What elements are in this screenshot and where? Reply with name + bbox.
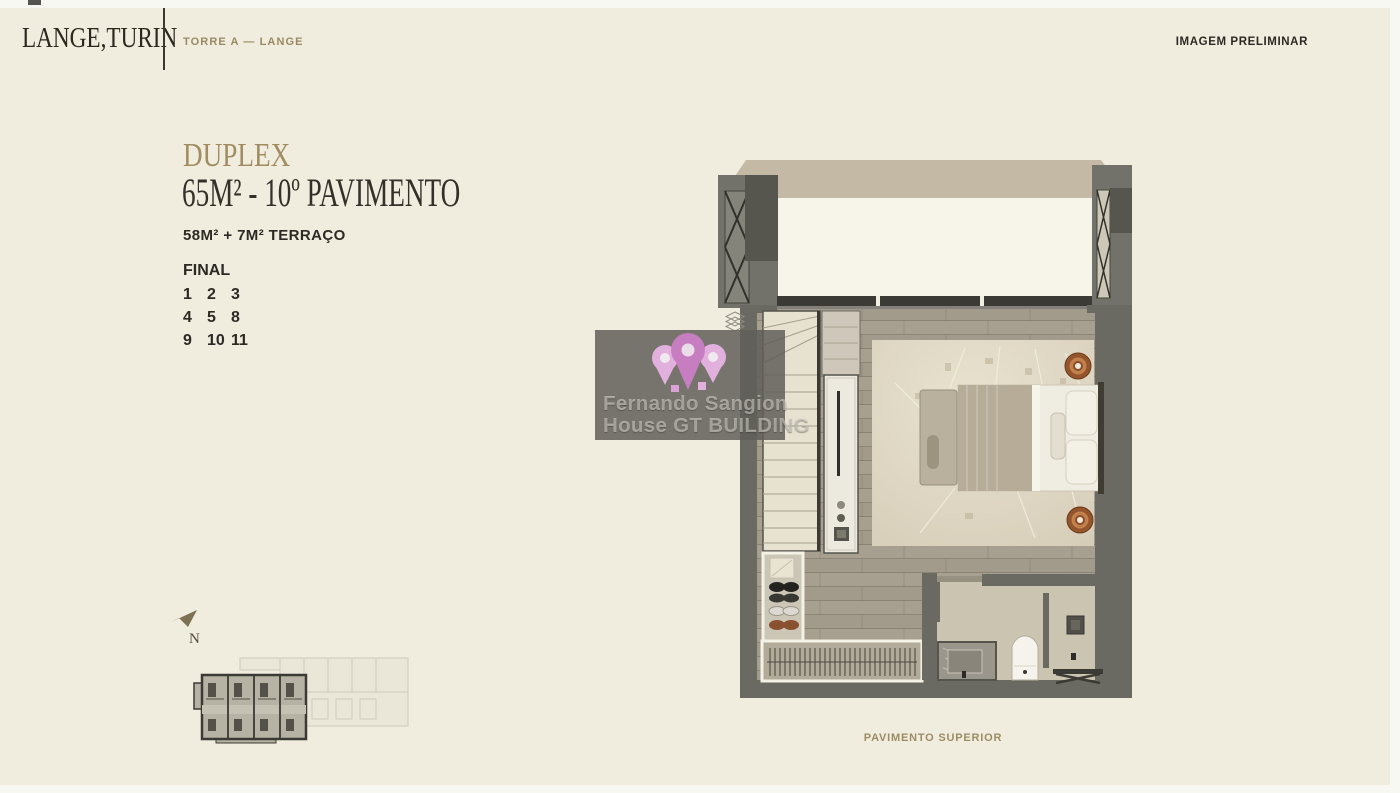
final-number: 11	[231, 332, 259, 350]
watermark-line1: Fernando Sangion	[603, 392, 788, 416]
page: LANGE,TURIN TORRE A — LANGE IMAGEM PRELI…	[0, 0, 1400, 793]
top-left-notch	[28, 0, 41, 5]
bed-bench	[920, 390, 957, 485]
right-pillar	[1092, 165, 1132, 308]
nightstand-top	[1065, 353, 1091, 379]
key-plan	[180, 653, 415, 745]
header-divider	[163, 8, 165, 70]
left-pillar	[718, 175, 778, 308]
preliminary-disclaimer: IMAGEM PRELIMINAR	[1176, 36, 1308, 48]
final-number: 8	[231, 309, 259, 327]
final-number: 9	[183, 332, 207, 350]
watermark-line2: House GT BUILDING	[603, 414, 810, 438]
final-number: 1	[183, 286, 207, 304]
vanity-sink	[938, 642, 996, 680]
final-number: 4	[183, 309, 207, 327]
key-plan-highlight	[194, 675, 306, 743]
bed	[958, 382, 1104, 494]
toilet	[1012, 636, 1038, 680]
console-cabinet	[822, 311, 860, 553]
watermark-pins-icon	[595, 330, 785, 392]
compass-arrow-icon	[171, 610, 197, 627]
final-numbers-grid: 1 2 3 4 5 8 9 10 11	[183, 286, 259, 350]
north-compass: N	[165, 605, 211, 649]
plan-caption: PAVIMENTO SUPERIOR	[715, 732, 1151, 744]
final-number: 5	[207, 309, 231, 327]
terrace-void	[778, 198, 1092, 296]
hanging-closet	[762, 641, 922, 681]
roof-band	[718, 160, 1132, 201]
final-number: 3	[231, 286, 259, 304]
watermark: Fernando Sangion House GT BUILDING	[595, 330, 785, 440]
window-wall	[777, 296, 1092, 309]
unit-area-detail: 58M² + 7M² TERRAÇO	[183, 227, 346, 244]
final-label: FINAL	[183, 262, 230, 280]
final-number: 10	[207, 332, 231, 350]
nightstand-bottom	[1067, 507, 1093, 533]
unit-title: 65M² - 10º PAVIMENTO	[182, 169, 460, 216]
header-logo: LANGE,TURIN	[22, 22, 177, 55]
compass-label: N	[189, 631, 200, 647]
final-number: 2	[207, 286, 231, 304]
tower-label: TORRE A — LANGE	[183, 36, 304, 48]
shoe-shelf	[763, 553, 803, 641]
